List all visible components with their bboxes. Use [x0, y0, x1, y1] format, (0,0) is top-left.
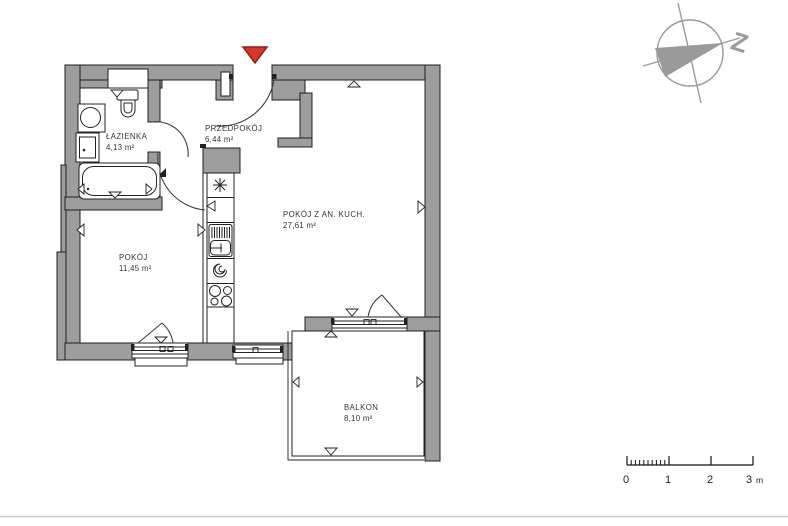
wall-top-right	[272, 65, 440, 80]
compass-direction-label: Z	[728, 26, 752, 59]
toilet-icon	[117, 90, 138, 117]
scale-tick-label: 0	[623, 474, 629, 486]
scale-tick-label: 2	[707, 474, 713, 486]
window-pokoj	[131, 343, 189, 366]
scale-unit-label: m	[756, 475, 763, 485]
wall-right	[425, 65, 440, 461]
star-symbol-icon	[213, 178, 227, 192]
marker-triangle	[418, 201, 425, 213]
scale-tick-label: 1	[665, 474, 671, 486]
entrance-marker-icon	[243, 47, 267, 63]
scale-tick-label: 3	[746, 474, 752, 486]
room-area: 8,10 m²	[344, 414, 373, 423]
balcony-door-arc	[368, 295, 382, 317]
room-label: PRZEDPOKÓJ	[205, 124, 262, 133]
marker-triangle	[346, 309, 358, 316]
bathtub-icon	[78, 163, 160, 199]
wall-left-step	[61, 165, 66, 261]
room-area: 27,61 m²	[283, 221, 316, 230]
compass-needle-icon	[655, 43, 723, 77]
wall-kitchen-block	[203, 148, 240, 173]
door-jamb	[229, 74, 234, 79]
marker-triangle	[348, 81, 360, 87]
kitchen-annex	[203, 173, 234, 343]
room-label: ŁAZIENKA	[106, 132, 148, 141]
washing-machine-icon	[76, 133, 99, 162]
wall-bathroom-right-upper	[148, 80, 160, 122]
scale-bar	[627, 456, 753, 465]
washbasin-icon	[78, 104, 105, 132]
room-area: 6,44 m²	[205, 135, 234, 144]
door-jamb	[272, 74, 277, 79]
partition-pokoj-kitchen	[203, 173, 207, 343]
shaft-niche	[108, 69, 148, 88]
floor-plan-canvas: ŁAZIENKA 4,13 m² PRZEDPOKÓJ 6,44 m² POKÓ…	[0, 0, 788, 526]
compass-rose: Z	[643, 3, 752, 103]
door-jamb	[200, 144, 206, 148]
room-area: 4,13 m²	[106, 143, 135, 152]
pokoj-door-swing-arc	[158, 153, 205, 210]
room-area: 11,45 m²	[119, 264, 152, 273]
kitchen-sink-icon	[209, 225, 232, 257]
room-label: POKÓJ Z AN. KUCH.	[283, 210, 365, 219]
window-main-room	[232, 345, 284, 364]
doors	[138, 74, 402, 343]
floor-plan-page: ŁAZIENKA 4,13 m² PRZEDPOKÓJ 6,44 m² POKÓ…	[0, 0, 788, 526]
room-label: BALKON	[344, 403, 378, 412]
wall-hall-pier-stub	[278, 138, 312, 147]
window-balcony-door	[331, 317, 408, 332]
scale-labels: 0 1 2 3 m	[623, 474, 763, 486]
room-label: POKÓJ	[119, 253, 148, 262]
balcony	[288, 331, 424, 460]
wall-top-left	[65, 65, 233, 80]
balcony-door-leaf	[382, 295, 402, 318]
vent-slot	[221, 72, 230, 96]
balcony-floor	[292, 331, 424, 456]
marker-triangle	[155, 337, 167, 343]
